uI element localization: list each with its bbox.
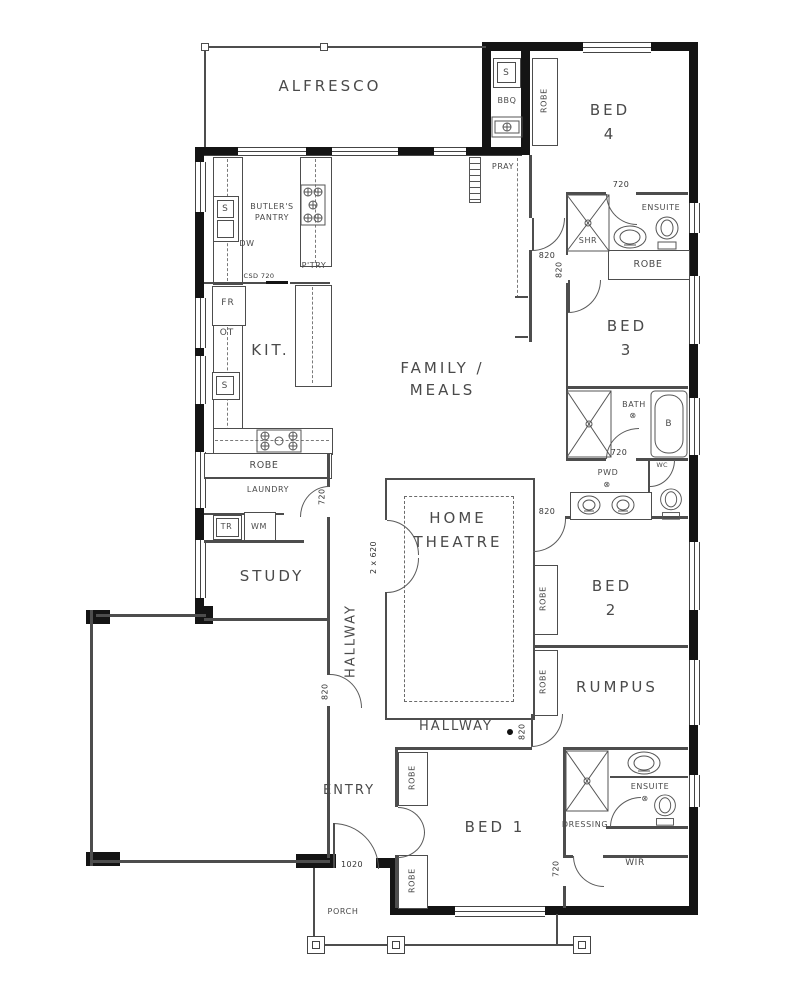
room-label-bed3: BED	[577, 316, 677, 336]
door-leaf	[333, 823, 335, 868]
wall	[204, 477, 330, 479]
shower-icon	[565, 750, 609, 812]
wall	[515, 296, 528, 298]
door-leaf	[531, 714, 533, 746]
porch-post	[573, 936, 591, 954]
drain-symbol: ⊗	[628, 410, 638, 420]
window	[689, 398, 700, 455]
post	[320, 43, 328, 51]
wall	[306, 147, 332, 155]
wall	[563, 826, 566, 856]
room-label-theatre1: HOME	[408, 508, 508, 528]
room-label-entry: ENTRY	[314, 781, 384, 799]
window	[455, 906, 545, 917]
toilet-icon	[658, 488, 684, 522]
label-ensuite-top: ENSUITE	[636, 202, 686, 213]
wall	[466, 147, 530, 155]
label-robe-bed1a: ROBE	[404, 754, 420, 802]
room-label-bed2-num: 2	[562, 600, 662, 620]
dim-720-laundry: 720	[317, 483, 327, 511]
room-label-study: STUDY	[234, 566, 310, 586]
porch-post	[387, 936, 405, 954]
door-arc	[573, 856, 604, 887]
wall	[398, 147, 434, 155]
door-arc	[398, 807, 425, 833]
room-label-bed2: BED	[562, 576, 662, 596]
door-arc	[568, 280, 601, 313]
bench-line	[312, 287, 313, 383]
label-wm: WM	[247, 520, 271, 533]
sink-label: S	[217, 200, 234, 218]
sink-label: S	[216, 376, 234, 395]
label-ptry: P'TRY	[298, 260, 330, 270]
window	[195, 162, 206, 212]
window	[689, 542, 700, 610]
dim-csd720: CSD 720	[238, 271, 280, 280]
dim-720-bath: 720	[606, 447, 632, 457]
post	[201, 43, 209, 51]
label-porch: PORCH	[320, 905, 366, 917]
wall	[290, 282, 330, 284]
label-laundry: LAUNDRY	[238, 484, 298, 495]
room-label-alfresco: ALFRESCO	[250, 76, 410, 96]
dim-720-wir: 720	[551, 855, 561, 883]
label-wir: WIR	[616, 857, 654, 869]
island-bench	[295, 285, 332, 387]
wall	[566, 458, 606, 461]
smoke-detector	[507, 729, 513, 735]
dim-820-bed3: 820	[554, 256, 564, 284]
label-fr: FR	[214, 296, 242, 310]
door-arc	[531, 714, 563, 747]
wall	[204, 282, 266, 284]
wall	[482, 42, 491, 149]
wall	[204, 46, 486, 48]
room-label-theatre2: THEATRE	[403, 532, 513, 552]
label-wc: WC	[652, 460, 672, 469]
label-shr: SHR	[570, 235, 606, 246]
room-label-family: FAMILY /	[385, 358, 500, 378]
label-bbq: BBQ	[492, 94, 522, 106]
wall	[566, 386, 688, 389]
label-robe-rumpus: ROBE	[535, 652, 551, 712]
wall	[529, 155, 532, 218]
window	[195, 356, 206, 404]
wall	[563, 886, 566, 908]
label-pwd: PWD	[592, 467, 624, 477]
sink-label: S	[497, 62, 516, 83]
door-arc	[606, 194, 637, 225]
floor-plan: S	[0, 0, 800, 1000]
sink-drainer	[217, 220, 234, 238]
window	[583, 42, 651, 53]
basin-icon	[576, 494, 602, 516]
basin-icon	[626, 750, 662, 776]
label-dressing: DRESSING	[556, 819, 614, 830]
window	[689, 203, 700, 233]
room-label-hallway-v: HALLWAY	[343, 601, 359, 681]
door-leaf	[533, 519, 535, 551]
door-arc	[610, 797, 641, 827]
dim-820-bed2: 820	[534, 506, 560, 516]
room-label-meals: MEALS	[385, 380, 500, 400]
room-label-rumpus: RUMPUS	[558, 677, 676, 697]
label-b: B	[660, 417, 678, 431]
toilet-icon	[652, 794, 678, 828]
wall	[96, 614, 206, 617]
wall	[529, 645, 688, 648]
label-ensuite-bot: ENSUITE	[624, 781, 676, 792]
porch-edge	[313, 868, 315, 944]
room-label-bed4: BED	[560, 100, 660, 120]
porch-post	[307, 936, 325, 954]
window	[195, 298, 206, 348]
door-leaf	[568, 280, 570, 312]
drain-symbol: ⊗	[640, 793, 650, 803]
toilet-icon	[654, 216, 680, 252]
label-ot: OT	[214, 326, 240, 340]
window	[689, 775, 700, 807]
room-label-bed1: BED 1	[445, 817, 545, 837]
dim-2x620-theatre: 2 x 620	[368, 525, 379, 591]
door-arc	[532, 218, 565, 251]
wall	[636, 192, 688, 195]
label-tr: TR	[217, 520, 236, 533]
wall	[204, 147, 238, 155]
wall	[395, 747, 532, 750]
wall	[529, 250, 532, 342]
label-pray: PRAY	[484, 161, 522, 172]
window	[195, 540, 206, 598]
porch-edge	[556, 914, 558, 944]
wall	[204, 618, 330, 621]
wall	[327, 453, 330, 487]
wall	[90, 610, 93, 866]
cavity-slider	[266, 281, 288, 284]
label-robe-bed2: ROBE	[535, 568, 551, 630]
label-robe-kit: ROBE	[234, 459, 294, 471]
door-arc	[533, 519, 566, 552]
wall	[204, 46, 206, 147]
shelf-unit	[469, 157, 481, 203]
bbq-grill-icon	[491, 116, 523, 138]
porch-edge	[313, 944, 590, 946]
window	[689, 660, 700, 725]
window	[689, 276, 700, 344]
room-label-bed3-num: 3	[577, 340, 677, 360]
basin-icon	[612, 224, 648, 250]
dim-820-rumpus: 820	[517, 718, 527, 746]
wall	[204, 540, 304, 543]
label-robe-bed4: ROBE	[536, 70, 552, 132]
dim-1020-entry: 1020	[336, 859, 368, 869]
wall	[563, 855, 573, 858]
pray-dashed-wall	[517, 158, 518, 298]
wall	[90, 860, 330, 863]
dim-820-hall: 820	[320, 678, 330, 706]
label-butlers1: BUTLER'S	[246, 201, 298, 211]
room-label-bed4-num: 4	[560, 124, 660, 144]
basin-icon	[610, 494, 636, 516]
wall	[515, 336, 528, 338]
label-bath: BATH	[616, 399, 652, 409]
label-dw: DW	[235, 238, 259, 249]
cooktop-icon	[256, 429, 302, 453]
room-label-hallway-h: HALLWAY	[413, 718, 499, 734]
cooktop-icon	[300, 184, 326, 226]
label-butlers2: PANTRY	[248, 212, 296, 222]
vanity-counter	[610, 776, 688, 778]
door-leaf	[532, 218, 534, 250]
label-robe-ens: ROBE	[618, 258, 678, 270]
dim-720-ensuite: 720	[608, 179, 634, 189]
room-label-kitchen: KIT.	[243, 340, 298, 360]
drain-symbol: ⊗	[602, 479, 612, 489]
label-robe-bed1b: ROBE	[404, 857, 420, 905]
wall	[327, 517, 330, 675]
